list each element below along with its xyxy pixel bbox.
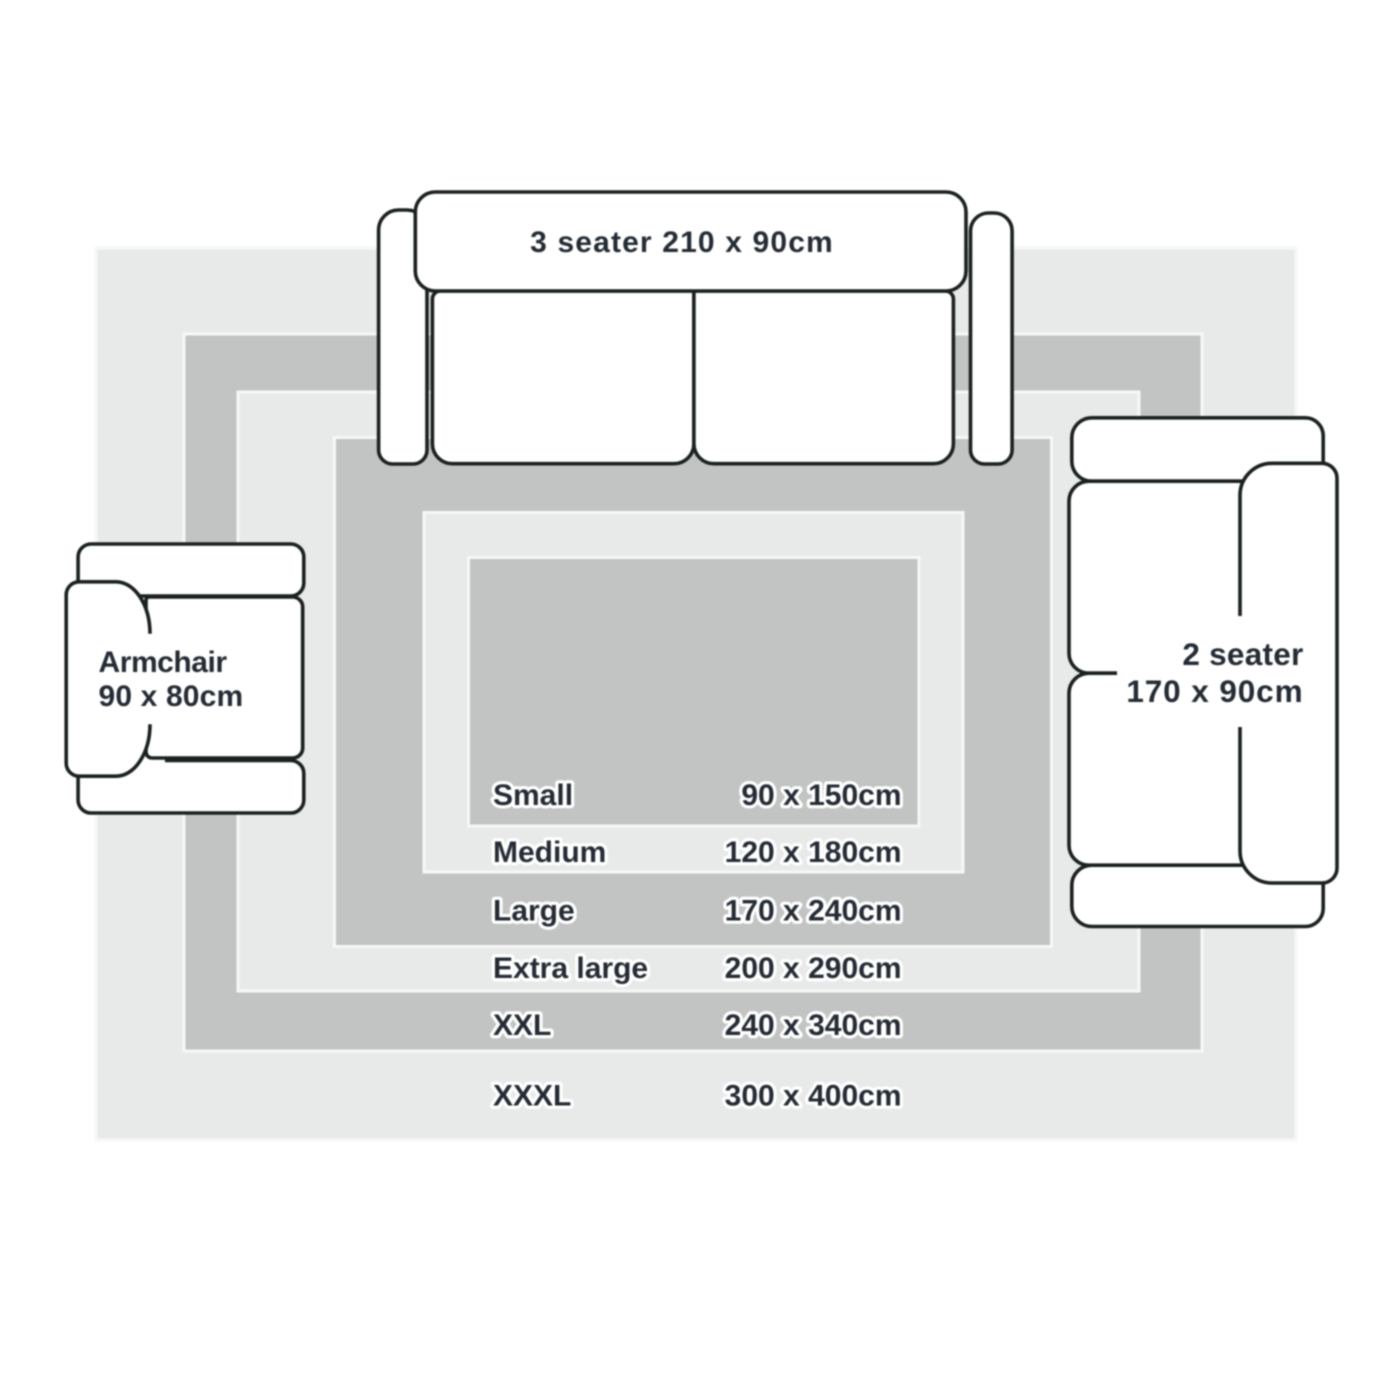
svg-text:Armchair: Armchair xyxy=(99,646,228,679)
svg-text:Large: Large xyxy=(493,895,575,928)
svg-text:170 x 90cm: 170 x 90cm xyxy=(1126,673,1303,709)
svg-text:300 x 400cm: 300 x 400cm xyxy=(725,1080,902,1113)
svg-text:240 x 340cm: 240 x 340cm xyxy=(725,1009,902,1042)
svg-text:XXXL: XXXL xyxy=(493,1080,571,1113)
svg-text:90 x 80cm: 90 x 80cm xyxy=(99,680,244,713)
svg-text:Extra large: Extra large xyxy=(493,952,648,985)
svg-text:90 x 150cm: 90 x 150cm xyxy=(741,779,901,812)
svg-text:2 seater: 2 seater xyxy=(1182,636,1303,672)
svg-text:3 seater 210 x 90cm: 3 seater 210 x 90cm xyxy=(530,226,834,259)
svg-text:120 x 180cm: 120 x 180cm xyxy=(725,836,902,869)
svg-text:XXL: XXL xyxy=(493,1009,551,1042)
svg-text:200 x 290cm: 200 x 290cm xyxy=(725,952,902,985)
svg-text:170 x 240cm: 170 x 240cm xyxy=(725,895,902,928)
svg-text:Small: Small xyxy=(493,779,573,812)
svg-text:Medium: Medium xyxy=(493,836,606,869)
